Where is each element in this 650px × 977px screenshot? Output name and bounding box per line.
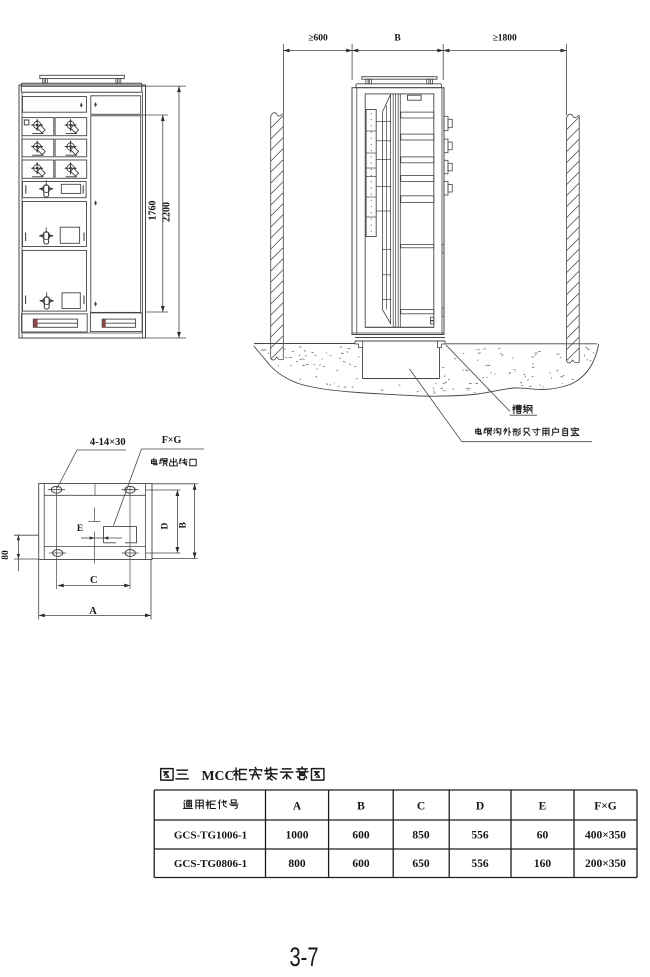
svg-text:650: 650	[412, 858, 430, 870]
svg-text:60: 60	[537, 830, 549, 842]
svg-text:B: B	[394, 33, 401, 43]
svg-text:≥600: ≥600	[308, 33, 328, 43]
svg-text:800: 800	[288, 858, 306, 870]
svg-text:80: 80	[1, 550, 11, 560]
svg-text:A: A	[89, 606, 97, 617]
svg-text:1760: 1760	[148, 201, 159, 221]
svg-text:A: A	[293, 801, 302, 813]
svg-text:200×350: 200×350	[585, 858, 626, 870]
svg-text:2200: 2200	[162, 202, 173, 222]
svg-text:C: C	[417, 801, 425, 813]
svg-text:3-7: 3-7	[290, 942, 319, 972]
svg-text:B: B	[357, 801, 365, 813]
svg-text:600: 600	[352, 858, 370, 870]
svg-text:D: D	[476, 801, 484, 813]
svg-text:1000: 1000	[286, 830, 309, 842]
svg-text:D: D	[161, 522, 171, 529]
svg-text:MCC: MCC	[202, 768, 235, 783]
svg-text:556: 556	[471, 858, 489, 870]
svg-text:850: 850	[412, 830, 430, 842]
svg-text:E: E	[539, 801, 547, 813]
svg-text:GCS-TG1006-1: GCS-TG1006-1	[174, 830, 247, 842]
svg-text:E: E	[77, 524, 83, 534]
svg-text:B: B	[178, 521, 188, 528]
svg-text:556: 556	[471, 830, 489, 842]
svg-text:≥1800: ≥1800	[493, 33, 517, 43]
svg-text:F×G: F×G	[594, 801, 617, 813]
svg-text:600: 600	[352, 830, 370, 842]
svg-text:4-14×30: 4-14×30	[90, 437, 126, 448]
svg-text:F×G: F×G	[162, 435, 182, 446]
svg-text:C: C	[90, 575, 98, 586]
svg-text:400×350: 400×350	[585, 830, 626, 842]
svg-text:GCS-TG0806-1: GCS-TG0806-1	[174, 858, 247, 870]
svg-text:160: 160	[534, 858, 552, 870]
